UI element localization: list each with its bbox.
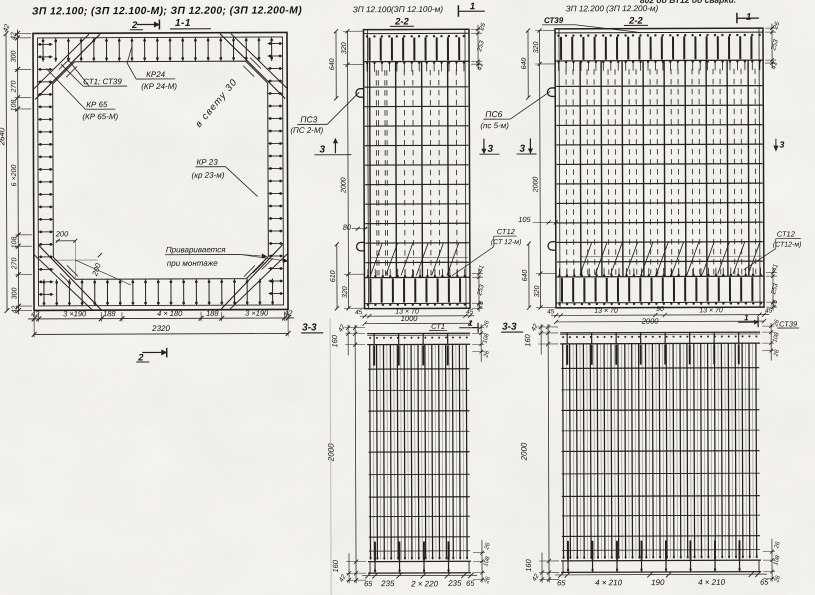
svg-text:42: 42 [284,308,293,317]
svg-text:3: 3 [319,144,325,155]
svg-text:42: 42 [10,32,17,40]
svg-text:300: 300 [11,288,18,300]
svg-text:3: 3 [487,144,493,155]
svg-text:3: 3 [519,144,525,155]
svg-text:1: 1 [746,12,751,23]
svg-text:ПС6: ПС6 [485,109,502,119]
svg-text:65: 65 [760,578,769,587]
svg-text:(СТ 12-м): (СТ 12-м) [491,239,522,246]
svg-text:СТ12: СТ12 [497,227,516,236]
svg-text:190: 190 [651,578,665,587]
svg-text:160: 160 [523,333,532,346]
svg-text:СТ1; СТ39: СТ1; СТ39 [83,77,122,86]
svg-text:3-3: 3-3 [502,322,517,333]
svg-text:СТ39: СТ39 [544,16,564,25]
svg-text:ЗП 12.100(ЗП 12.100-м): ЗП 12.100(ЗП 12.100-м) [353,5,444,14]
svg-text:1: 1 [468,319,473,328]
svg-text:300: 300 [11,51,18,63]
svg-text:4 × 210: 4 × 210 [698,578,725,587]
svg-text:160: 160 [331,559,340,572]
svg-text:13 × 70: 13 × 70 [594,308,618,315]
svg-text:45: 45 [466,309,474,316]
svg-text:ЗП 12.100; (ЗП 12.100-М); ЗП 1: ЗП 12.100; (ЗП 12.100-М); ЗП 12.200; (ЗП… [32,5,302,17]
svg-text:45: 45 [765,308,773,315]
svg-text:6 ×200: 6 ×200 [11,165,18,187]
svg-text:3 ×190: 3 ×190 [63,309,87,318]
svg-text:3: 3 [779,140,784,150]
svg-text:2000: 2000 [641,317,660,326]
svg-text:СТ12: СТ12 [777,230,796,239]
svg-text:КР24: КР24 [146,70,166,79]
svg-text:2 × 220: 2 × 220 [410,579,438,588]
svg-text:188: 188 [103,309,116,318]
svg-text:270: 270 [11,81,18,94]
svg-text:2320: 2320 [151,324,170,333]
svg-text:КР 65: КР 65 [86,100,108,109]
svg-text:320: 320 [341,42,348,54]
svg-text:610: 610 [330,270,337,282]
svg-text:160: 160 [524,558,533,571]
svg-text:65: 65 [364,579,373,588]
svg-text:(кр 23-м): (кр 23-м) [192,171,225,180]
svg-text:Приваривается: Приваривается [166,245,226,254]
svg-text:при монтаже: при монтаже [167,259,218,268]
svg-text:СТ1: СТ1 [431,322,445,331]
svg-text:(ПС 2-М): (ПС 2-М) [290,126,323,135]
svg-text:ПС3: ПС3 [300,114,317,124]
svg-text:160: 160 [330,334,339,347]
svg-text:(СТ12-м): (СТ12-м) [773,241,802,248]
svg-text:3 ×190: 3 ×190 [245,309,269,318]
svg-text:320: 320 [533,42,540,54]
svg-text:270: 270 [11,258,18,271]
svg-text:640: 640 [521,58,528,70]
svg-text:4 × 210: 4 × 210 [595,578,622,587]
svg-text:2000: 2000 [341,177,348,194]
svg-text:65: 65 [557,578,566,587]
svg-text:ЗП 12.200 (ЗП 12.200-м): ЗП 12.200 (ЗП 12.200-м) [566,4,659,13]
svg-text:320: 320 [534,286,541,298]
svg-text:235: 235 [380,579,395,588]
svg-text:2000: 2000 [520,442,529,461]
svg-text:4 × 180: 4 × 180 [157,309,183,318]
svg-text:1: 1 [744,313,749,322]
svg-text:200: 200 [55,229,69,238]
svg-text:СТ39: СТ39 [779,319,798,328]
svg-text:1000: 1000 [401,314,419,323]
svg-text:65: 65 [466,579,475,588]
svg-text:КР 23: КР 23 [196,158,218,167]
svg-text:45: 45 [547,308,555,315]
svg-text:108: 108 [11,237,18,249]
svg-text:320: 320 [342,286,349,298]
svg-text:13 × 70: 13 × 70 [699,307,723,314]
svg-text:(пс 5-м): (пс 5-м) [480,121,509,130]
svg-text:1-1: 1-1 [175,18,191,29]
svg-text:2000: 2000 [533,177,540,194]
svg-text:80: 80 [343,223,352,232]
svg-text:42: 42 [31,309,40,318]
svg-text:802 до ВТ12 до сварки.: 802 до ВТ12 до сварки. [640,0,736,5]
svg-text:2640: 2640 [0,127,6,146]
svg-text:(КР 65-М): (КР 65-М) [82,112,118,121]
svg-text:42: 42 [12,305,19,313]
svg-text:(КР 24-М): (КР 24-М) [141,82,177,91]
svg-text:235: 235 [447,579,462,588]
svg-text:105: 105 [518,215,531,224]
svg-text:45: 45 [355,309,363,316]
svg-text:108: 108 [11,100,18,112]
svg-text:3-3: 3-3 [302,322,317,333]
svg-text:1: 1 [470,1,475,12]
svg-text:640: 640 [522,270,529,282]
svg-text:90: 90 [656,306,664,313]
svg-text:640: 640 [329,58,336,70]
svg-text:188: 188 [206,309,219,318]
